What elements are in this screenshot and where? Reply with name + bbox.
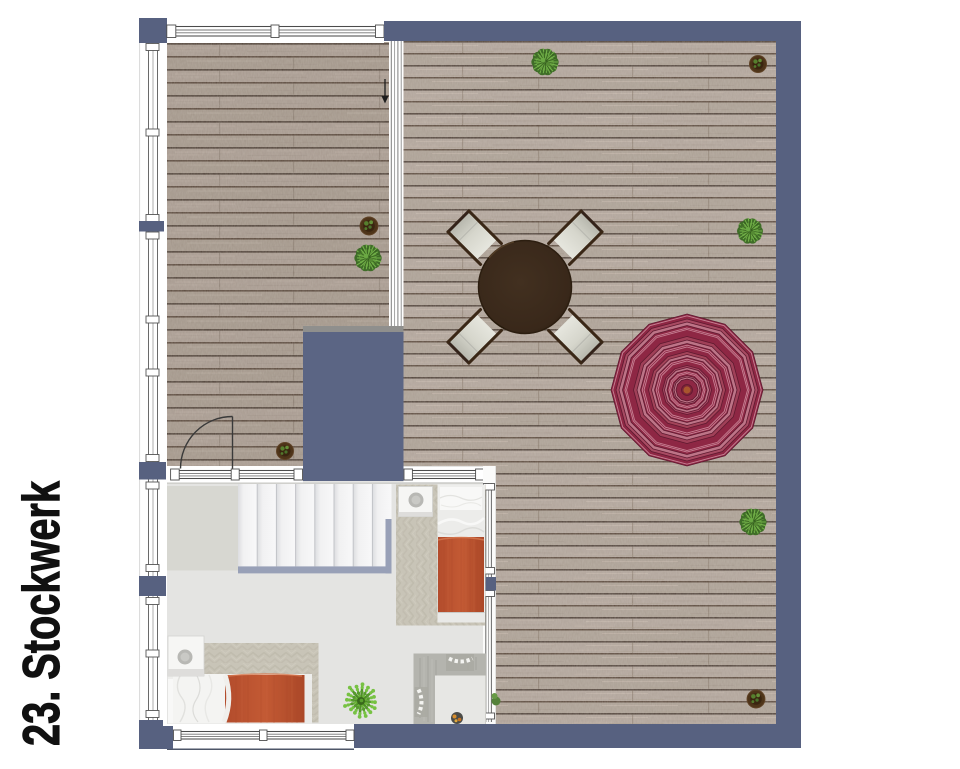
svg-text:23. Stockwerk: 23. Stockwerk: [13, 481, 71, 746]
